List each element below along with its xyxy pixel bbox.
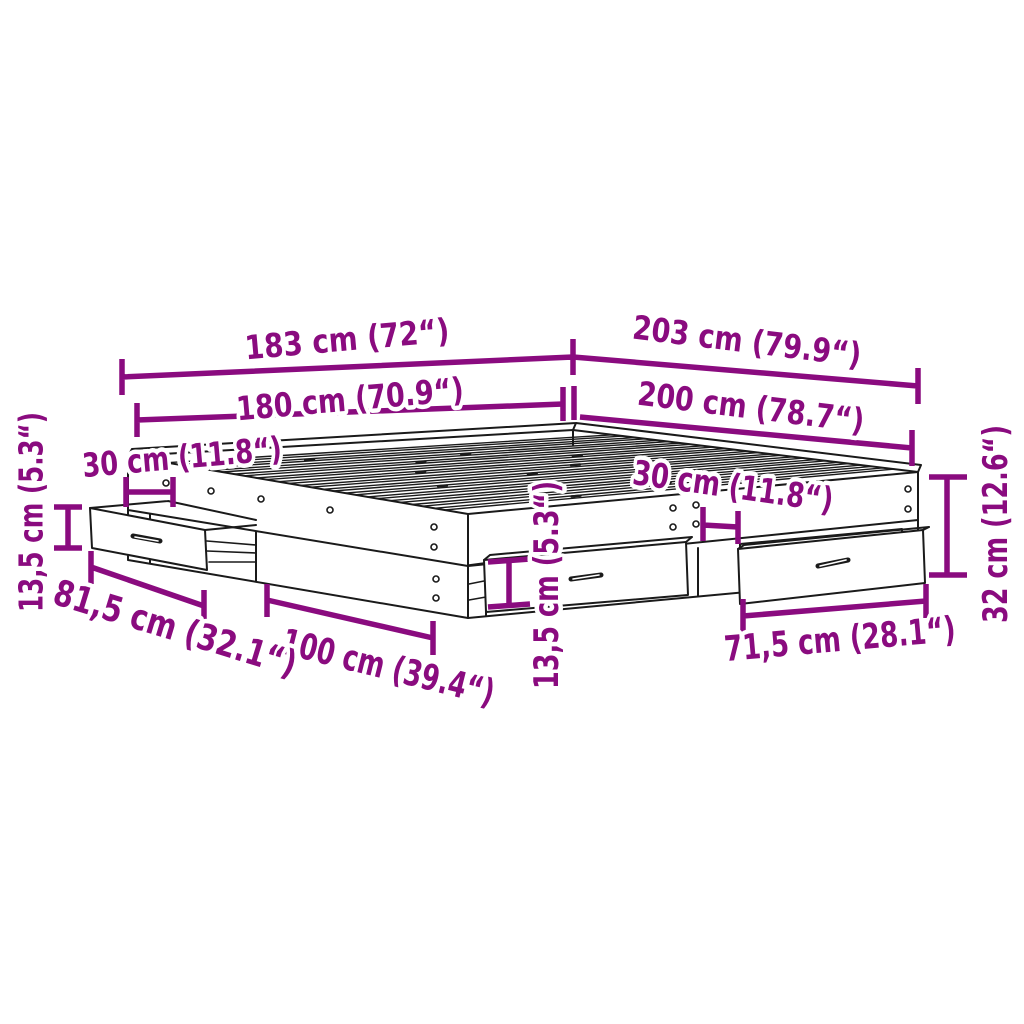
screw-hole: [431, 524, 437, 530]
screw-hole: [670, 524, 676, 530]
label-frame-height: 32 cm (12.6“): [976, 425, 1016, 623]
screw-hole: [905, 506, 911, 512]
drawer-left: [90, 501, 256, 570]
knot-mark: [571, 465, 580, 466]
screw-hole: [693, 521, 699, 527]
dim-line-frame-height: [929, 477, 967, 575]
label-left-drawer-width: 81,5 cm (32.1“): [49, 573, 302, 686]
knot-mark: [572, 496, 581, 497]
dim-line-left-drawer-height: [54, 507, 82, 548]
screw-hole: [905, 486, 911, 492]
dimension-labels: 183 cm (72“) 203 cm (79.9“) 180 cm (70.9…: [12, 308, 1017, 715]
screw-hole: [433, 576, 439, 582]
bed-frame-dimension-drawing: 183 cm (72“) 203 cm (79.9“) 180 cm (70.9…: [0, 0, 1024, 1024]
screw-hole: [433, 595, 439, 601]
label-width-outer: 183 cm (72“): [243, 311, 451, 368]
screw-hole: [693, 502, 699, 508]
knot-mark: [528, 473, 537, 474]
knot-mark: [573, 455, 582, 456]
label-left-drawer-height: 13,5 cm (5.3“): [12, 412, 51, 612]
knot-mark: [417, 462, 426, 463]
screw-hole: [258, 496, 264, 502]
screw-hole: [208, 488, 214, 494]
label-middle-drawer-width: 100 cm (39.4“): [277, 622, 498, 715]
knot-mark: [305, 459, 314, 460]
drawer-left-runners: [207, 541, 256, 562]
screw-hole: [163, 480, 169, 486]
label-middle-drawer-height: 13,5 cm (5.3“): [527, 481, 567, 689]
knot-mark: [416, 472, 425, 473]
screw-hole: [670, 505, 676, 511]
screw-hole: [327, 507, 333, 513]
knot-mark: [438, 486, 447, 487]
screw-hole: [431, 544, 437, 550]
drawer-right: [738, 527, 929, 604]
dimension-diagram: 183 cm (72“) 203 cm (79.9“) 180 cm (70.9…: [0, 0, 1024, 1024]
knot-mark: [461, 454, 470, 455]
label-right-drawer-width: 71,5 cm (28.1“): [723, 610, 958, 670]
label-width-inner: 180 cm (70.9“): [235, 370, 466, 429]
